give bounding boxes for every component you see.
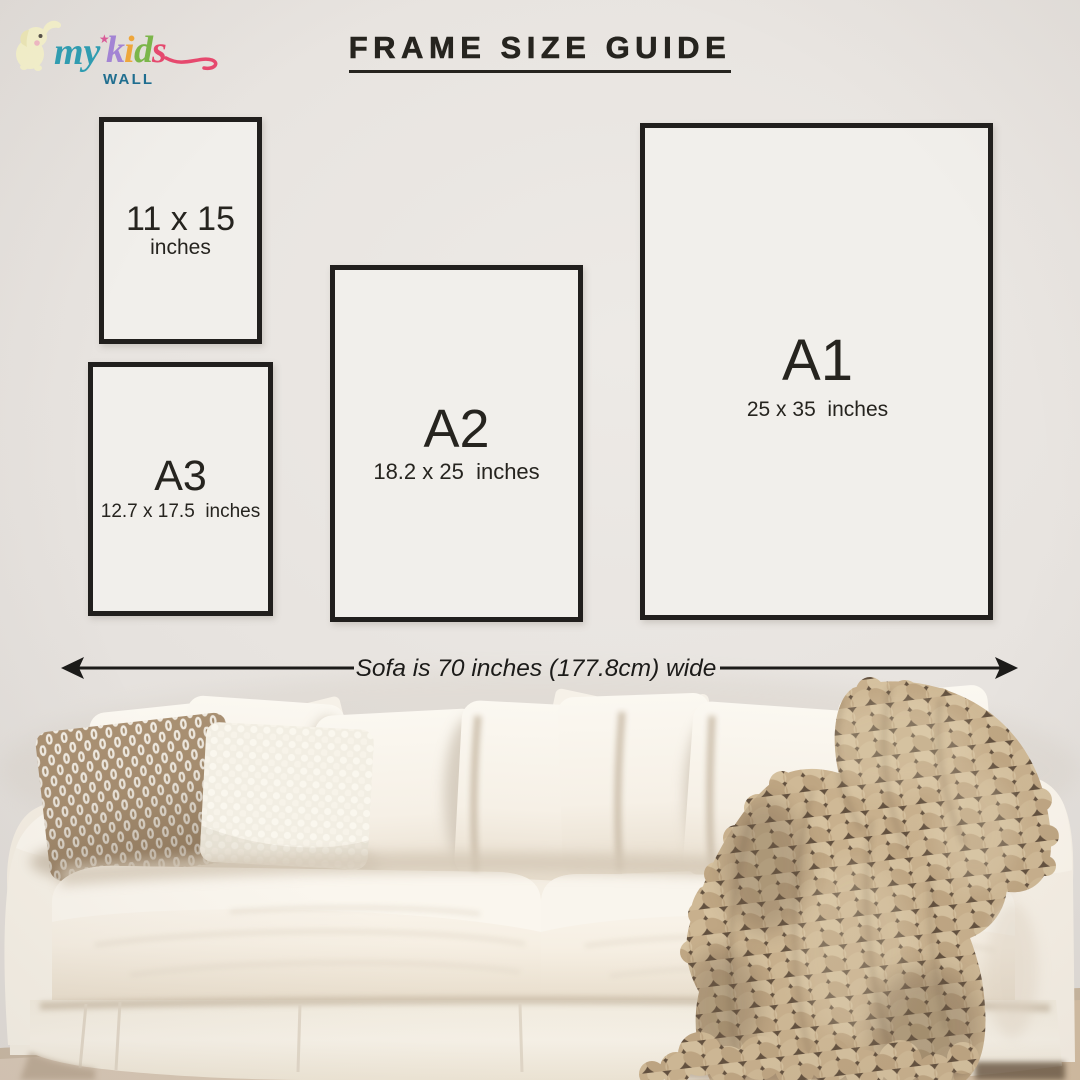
- svg-text:Sofa is 70 inches (177.8cm) wi: Sofa is 70 inches (177.8cm) wide: [356, 655, 717, 682]
- svg-text:WALL: WALL: [103, 71, 154, 88]
- svg-text:my: my: [54, 31, 101, 73]
- svg-text:d: d: [134, 29, 154, 71]
- svg-text:s: s: [151, 29, 167, 71]
- svg-text:k: k: [106, 29, 125, 71]
